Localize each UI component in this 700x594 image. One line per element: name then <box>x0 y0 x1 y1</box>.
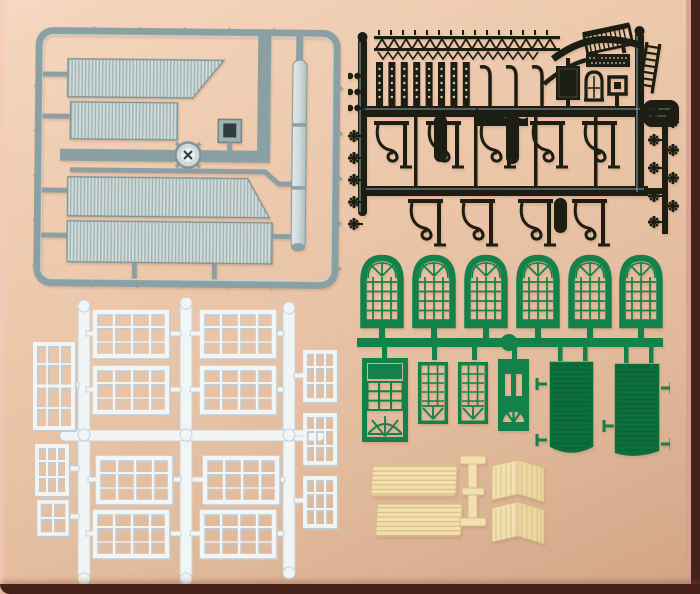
roof-panel-3 <box>67 177 269 218</box>
gray-roof-sprue <box>32 25 345 290</box>
canopy-brackets-upper <box>374 121 620 167</box>
station-clock <box>175 142 200 167</box>
gray-sprue-shapes <box>32 25 345 290</box>
canopy-brackets-lower <box>408 199 610 245</box>
black-sprue-shapes <box>348 22 679 245</box>
hanger-arms <box>478 65 546 112</box>
green-small-window-1 <box>420 364 447 423</box>
back-board-1 <box>492 460 544 502</box>
green-door-two-lights <box>498 359 529 431</box>
roof-panel-1 <box>68 59 224 99</box>
seat-board-2 <box>376 504 463 536</box>
green-windows-sprue <box>355 250 670 462</box>
fretwork-columns <box>376 62 470 106</box>
green-sprue-shapes <box>357 258 670 455</box>
arched-window-row <box>364 258 660 325</box>
cream-bench-parts <box>368 452 558 547</box>
photo-edge-bottom <box>0 584 700 594</box>
roof-panel-4 <box>67 221 272 264</box>
green-door-fanlight <box>365 361 406 440</box>
cream-shapes <box>371 456 544 544</box>
square-frame-part <box>609 77 626 106</box>
back-board-2 <box>492 502 544 544</box>
photo-edge-left <box>0 0 7 584</box>
white-window-sprue <box>22 298 362 588</box>
roof-panel-2 <box>70 102 177 140</box>
bench-support <box>460 456 486 526</box>
seat-board-1 <box>371 465 458 496</box>
gate-door-2 <box>616 365 658 455</box>
ridge-strip <box>586 54 630 67</box>
photo-canvas <box>0 0 700 594</box>
green-small-window-2 <box>460 364 487 423</box>
arched-window-part <box>584 72 604 106</box>
lattice-valance <box>374 30 560 59</box>
chimney-head <box>218 119 241 151</box>
gate-door-1 <box>551 363 592 452</box>
chimney-pipe <box>291 36 307 251</box>
photo-edge-right <box>691 0 700 594</box>
green-runner <box>357 325 663 363</box>
black-canopy-sprue <box>348 14 693 249</box>
